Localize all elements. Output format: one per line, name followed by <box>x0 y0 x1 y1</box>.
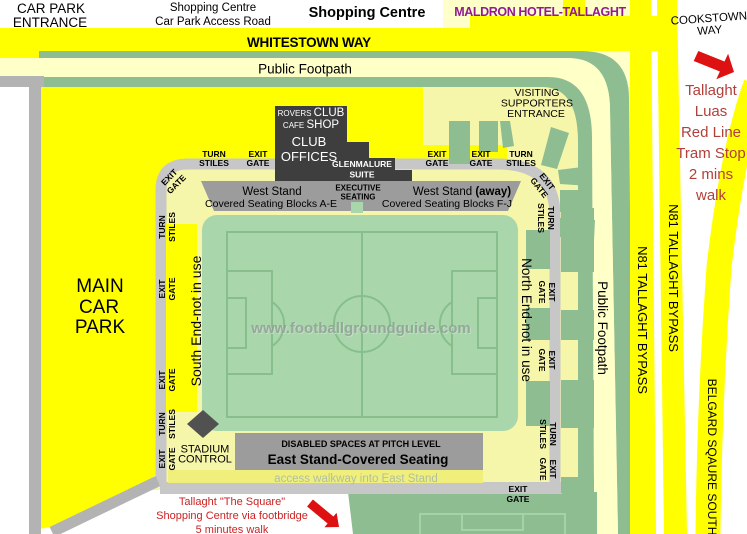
svg-text:MALDRON HOTEL-TALLAGHT: MALDRON HOTEL-TALLAGHT <box>454 5 626 19</box>
svg-text:Tallaght "The Square": Tallaght "The Square" <box>179 496 285 508</box>
svg-text:GATE: GATE <box>167 277 177 300</box>
svg-text:Shopping Centre: Shopping Centre <box>170 2 256 14</box>
svg-text:ROVERS CLUB: ROVERS CLUB <box>278 107 345 119</box>
svg-text:GLENMALURE: GLENMALURE <box>332 159 392 169</box>
svg-text:South End-not in use: South End-not in use <box>188 255 204 386</box>
svg-text:www.footballgroundguide.com: www.footballgroundguide.com <box>250 320 470 337</box>
svg-text:Red Line: Red Line <box>681 124 741 141</box>
svg-text:EXIT: EXIT <box>547 351 557 371</box>
svg-text:CAFE SHOP: CAFE SHOP <box>283 119 339 131</box>
svg-text:5 minutes walk: 5 minutes walk <box>196 524 269 534</box>
svg-text:TURN: TURN <box>548 422 558 446</box>
svg-text:TURN: TURN <box>157 412 167 436</box>
svg-text:STILES: STILES <box>199 158 229 168</box>
svg-text:Car Park Access Road: Car Park Access Road <box>155 16 271 28</box>
svg-text:CONTROL: CONTROL <box>178 454 232 466</box>
svg-text:STILES: STILES <box>506 158 536 168</box>
svg-text:MAIN: MAIN <box>76 276 124 297</box>
svg-text:WHITESTOWN WAY: WHITESTOWN WAY <box>247 35 371 50</box>
svg-text:2 mins: 2 mins <box>689 166 733 183</box>
svg-text:EXIT: EXIT <box>509 484 529 494</box>
svg-text:EXIT: EXIT <box>157 370 167 390</box>
svg-text:GATE: GATE <box>538 458 548 481</box>
svg-text:Shopping Centre via footbridge: Shopping Centre via footbridge <box>156 510 308 522</box>
svg-text:Luas: Luas <box>695 103 728 120</box>
svg-text:CLUB: CLUB <box>292 134 327 149</box>
svg-text:Tram Stop: Tram Stop <box>676 145 745 162</box>
svg-text:East Stand-Covered Seating: East Stand-Covered Seating <box>268 452 449 467</box>
svg-text:PARK: PARK <box>75 317 126 338</box>
svg-text:ENTRANCE: ENTRANCE <box>13 15 87 30</box>
svg-text:Public Footpath: Public Footpath <box>595 281 610 375</box>
svg-text:STILES: STILES <box>536 203 546 233</box>
svg-text:Covered Seating Blocks A-E: Covered Seating Blocks A-E <box>205 198 337 210</box>
svg-text:DISABLED SPACES AT PITCH LEVEL: DISABLED SPACES AT PITCH LEVEL <box>281 439 441 449</box>
svg-text:WAY: WAY <box>697 24 723 38</box>
svg-text:GATE: GATE <box>167 447 177 470</box>
svg-text:GATE: GATE <box>537 281 547 304</box>
svg-text:N81 TALLAGHT BYPASS: N81 TALLAGHT BYPASS <box>666 204 681 352</box>
svg-text:ENTRANCE: ENTRANCE <box>507 108 565 120</box>
svg-text:GATE: GATE <box>537 349 547 372</box>
svg-text:walk: walk <box>695 187 727 204</box>
svg-text:GATE: GATE <box>167 368 177 391</box>
svg-text:SEATING: SEATING <box>341 193 376 202</box>
svg-text:TURN: TURN <box>157 215 167 239</box>
svg-text:CAR PARK: CAR PARK <box>17 1 85 16</box>
svg-text:GATE: GATE <box>247 158 270 168</box>
svg-text:Covered Seating Blocks F-J: Covered Seating Blocks F-J <box>382 198 512 210</box>
svg-text:EXIT: EXIT <box>157 279 167 299</box>
svg-text:access walkway into East Stand: access walkway into East Stand <box>274 473 438 485</box>
svg-text:GATE: GATE <box>426 158 449 168</box>
svg-text:Public Footpath: Public Footpath <box>258 62 352 77</box>
svg-text:Tallaght: Tallaght <box>685 82 738 99</box>
svg-text:STILES: STILES <box>538 419 548 449</box>
svg-text:EXECUTIVE: EXECUTIVE <box>335 184 381 193</box>
svg-text:EXIT: EXIT <box>547 283 557 303</box>
svg-text:West Stand: West Stand <box>242 186 301 198</box>
svg-text:GATE: GATE <box>507 494 530 504</box>
svg-text:Shopping Centre: Shopping Centre <box>309 5 426 21</box>
svg-text:N81 TALLAGHT BYPASS: N81 TALLAGHT BYPASS <box>635 246 650 394</box>
svg-text:North End-not in use: North End-not in use <box>519 258 534 382</box>
svg-text:OFFICES: OFFICES <box>281 149 338 164</box>
svg-text:EXIT: EXIT <box>157 449 167 469</box>
svg-text:BELGARD SQAURE SOUTH: BELGARD SQAURE SOUTH <box>705 379 719 534</box>
svg-text:EXIT: EXIT <box>548 460 558 480</box>
svg-text:STILES: STILES <box>167 409 177 439</box>
svg-text:West Stand (away): West Stand (away) <box>413 186 511 198</box>
svg-text:STILES: STILES <box>167 212 177 242</box>
svg-text:GATE: GATE <box>470 158 493 168</box>
svg-text:TURN: TURN <box>546 206 556 230</box>
svg-text:CAR: CAR <box>79 297 119 318</box>
svg-text:SUITE: SUITE <box>349 170 374 180</box>
